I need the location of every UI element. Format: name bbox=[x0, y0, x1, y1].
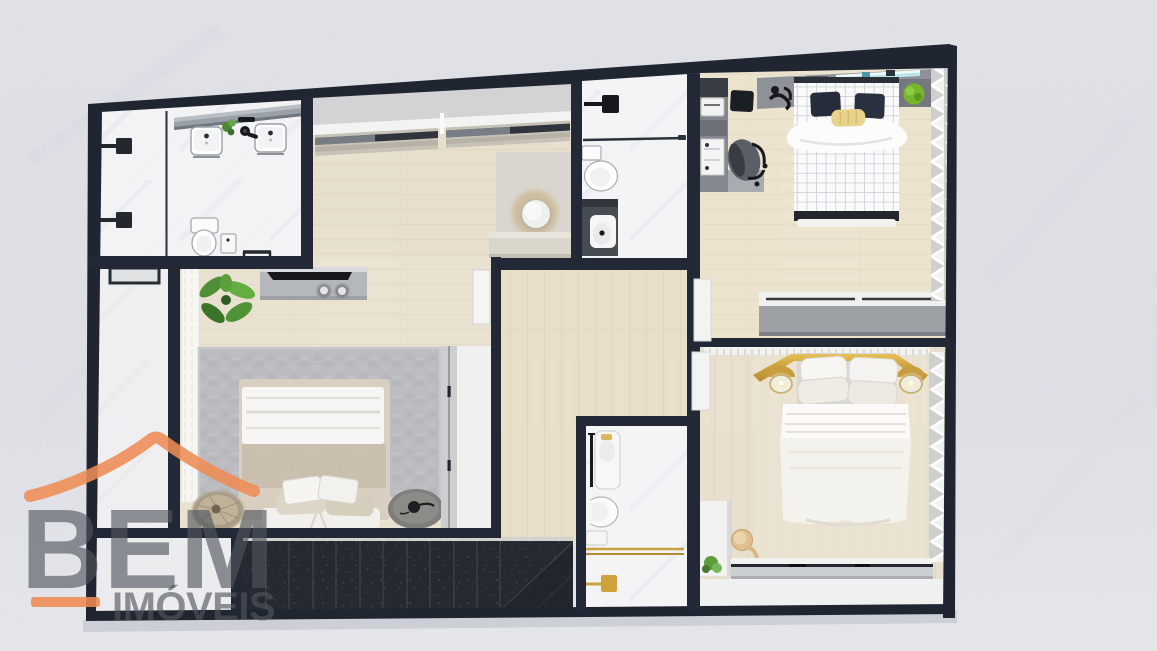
svg-text:IMÓVEIS: IMÓVEIS bbox=[112, 583, 275, 629]
